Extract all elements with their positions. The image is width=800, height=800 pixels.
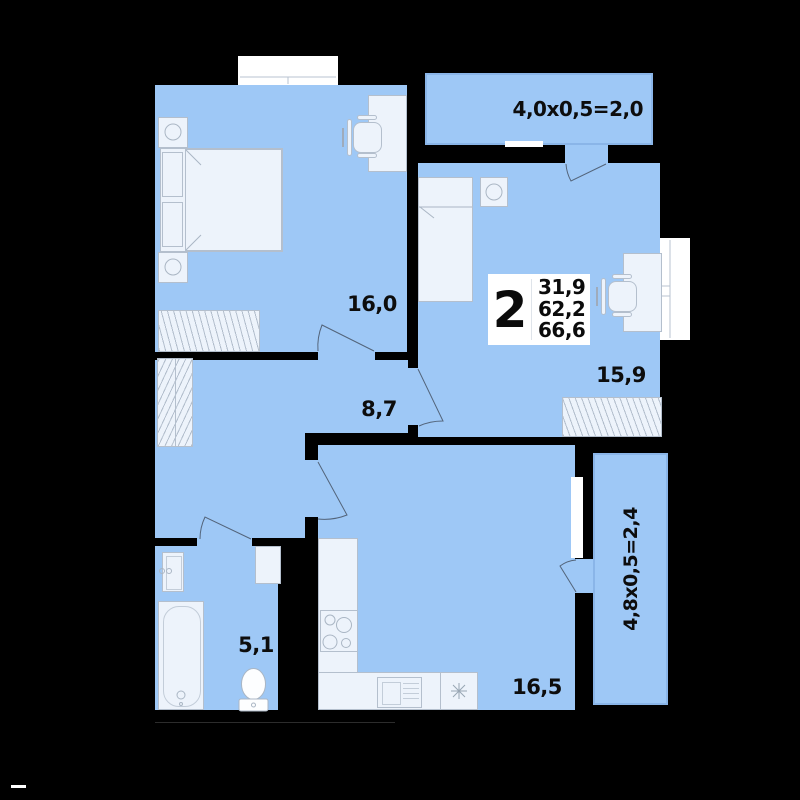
bathtub (158, 601, 204, 710)
office-chair-armrest (612, 274, 632, 279)
pillow (162, 202, 183, 247)
room-hallway-lower (155, 433, 305, 538)
pillow (162, 152, 183, 197)
office-chair-back (347, 119, 352, 156)
doorway-bedroom (318, 352, 375, 360)
badge-areas: 31,9 62,2 66,6 (533, 274, 590, 345)
watermark-dash (11, 785, 26, 788)
office-chair-back (601, 278, 606, 315)
area-label-bathroom: 5,1 (231, 634, 281, 656)
area-label-kitchen: 16,5 (511, 676, 563, 698)
baseline-shadow (155, 722, 395, 723)
window-bedroom2-right (660, 238, 690, 340)
service-shaft (255, 546, 281, 584)
single-bed (418, 177, 473, 302)
doorway-kitchen (305, 460, 318, 517)
window-sill-sliver (505, 141, 543, 147)
badge-area-main: 62,2 (538, 299, 590, 321)
counter-divider (440, 672, 441, 710)
office-chair-seat (608, 281, 637, 312)
floor-plan: 4,0x0,5=2,0 4,8x0,5=2,4 (0, 0, 800, 800)
wardrobe (158, 310, 260, 352)
nightstand (480, 177, 508, 207)
office-chair-seat (353, 122, 382, 153)
doorway-balcony-right (575, 559, 593, 593)
bathtub-inner (163, 606, 201, 707)
oven-vents (403, 683, 419, 703)
window-kitchen-right (571, 477, 583, 558)
unit-info-badge: 2 31,9 62,2 66,6 (488, 274, 590, 345)
office-chair-armrest (357, 153, 377, 158)
area-label-bedroom2: 15,9 (595, 364, 647, 386)
sink-basin (166, 556, 182, 590)
office-chair-armrest (612, 312, 632, 317)
badge-divider (531, 279, 532, 340)
oven (377, 677, 422, 708)
balcony-top-label: 4,0x0,5=2,0 (427, 75, 651, 143)
doorway-balcony-top (565, 145, 608, 163)
office-chair-armrest (357, 115, 377, 120)
doorway-bedroom2 (407, 368, 418, 425)
wardrobe-divider (175, 359, 176, 446)
office-chair-base (342, 128, 344, 147)
window-bedroom-top (238, 56, 338, 85)
badge-rooms-count: 2 (488, 274, 530, 345)
stove (320, 610, 358, 652)
bathroom-sink (162, 552, 184, 592)
balcony-right-label: 4,8x0,5=2,4 (620, 507, 642, 631)
area-label-bedroom: 16,0 (347, 293, 397, 315)
badge-area-total: 66,6 (538, 320, 590, 342)
balcony-right: 4,8x0,5=2,4 (593, 453, 668, 705)
balcony-top: 4,0x0,5=2,0 (425, 73, 653, 145)
doorway-bathroom (197, 538, 252, 546)
area-label-hallway: 8,7 (354, 398, 404, 420)
wardrobe (157, 358, 193, 447)
nightstand (158, 117, 188, 148)
office-chair-base (596, 287, 598, 306)
oven-door (382, 682, 401, 705)
nightstand (158, 252, 188, 283)
badge-area-living: 31,9 (538, 277, 590, 299)
mattress (185, 149, 282, 251)
wardrobe (562, 397, 662, 437)
